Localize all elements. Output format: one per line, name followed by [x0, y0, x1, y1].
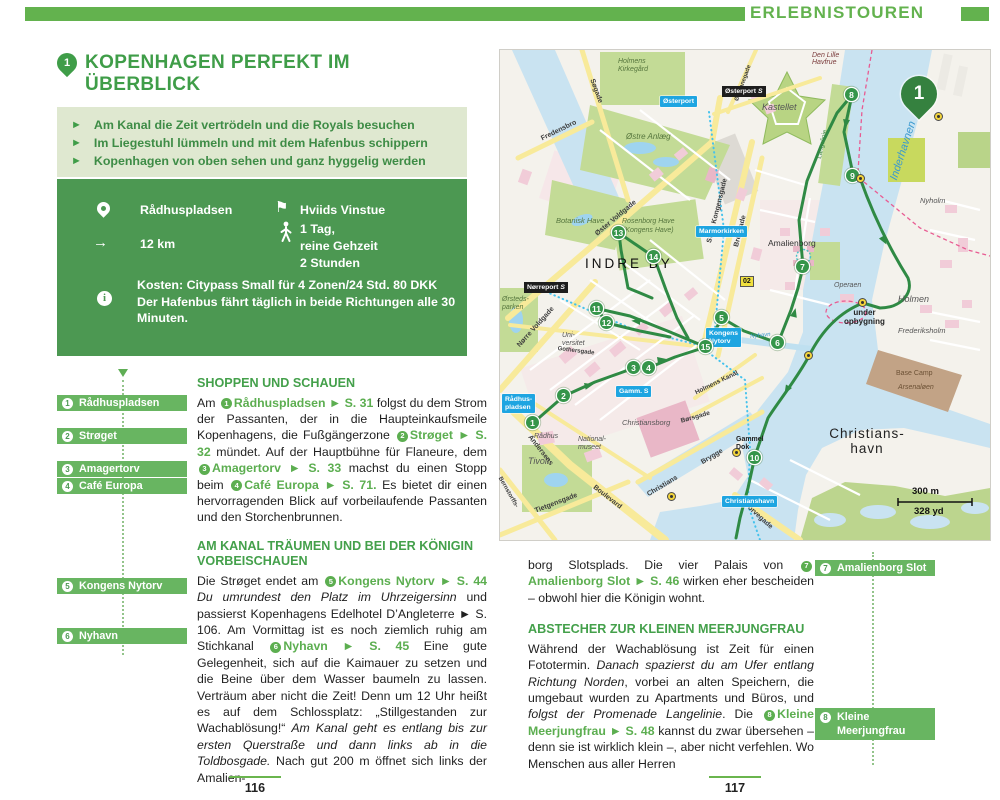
label-holmen: Holmen [898, 294, 929, 304]
info-icon: i [97, 291, 112, 306]
label-under-opbygning: under opbygning [844, 308, 885, 326]
page-ref: ► S. 33 [281, 461, 341, 475]
harbour-bus-stop-icon [858, 298, 867, 307]
route-direction-arrow-icon [118, 369, 128, 377]
margin-label-kongens-nytorv: 5 Kongens Nytorv [57, 578, 187, 594]
page-number-right: 117 [709, 781, 761, 795]
label-arsenaloen: Arsenaløen [898, 384, 934, 391]
highlight-text: Im Liegestuhl lümmeln und mit dem Hafenb… [94, 134, 428, 152]
label-universitet: Uni- versitet [562, 332, 585, 348]
stop-name: Café Europa [79, 480, 143, 492]
label-oestre-anlaeg: Østre Anlæg [626, 132, 671, 141]
label-oerstedsparken: Ørsteds- parken [502, 296, 529, 312]
station-oesterport-metro: Østerport [660, 96, 697, 107]
city-map: INDRE BY Christians- havn Kastellet Amal… [500, 50, 990, 540]
map-stop-6: 6 [771, 336, 784, 349]
text: borg Slotsplads. Die vier Palais von [528, 558, 799, 572]
location-pin-icon [94, 199, 112, 217]
harbour-bus-stop-icon [934, 112, 943, 121]
tour-pin-icon: 1 [894, 69, 945, 120]
left-text-column: SHOPPEN UND SCHAUEN Am 1Rådhuspladsen ► … [197, 376, 487, 786]
page-ref: ► S. 45 [328, 639, 409, 653]
page-ref: ► S. 71. [319, 478, 377, 492]
right-text-column: borg Slotsplads. Die vier Palais von 7Am… [528, 557, 814, 772]
harbour-bus-stop-icon [856, 174, 865, 183]
label-kongens-have: Rosenborg Have (Kongens Have) [622, 218, 675, 235]
margin-label-amalienborg-slot: 7 Amalienborg Slot [815, 560, 935, 576]
label-amalienborg: Amalienborg [768, 238, 816, 248]
link-cafe-europa: Café Europa [244, 478, 319, 492]
text: Die Strøget endet am [197, 574, 323, 588]
section-heading: AM KANAL TRÄUMEN UND BEI DER KÖNIGIN VOR… [197, 539, 487, 570]
bullet-arrow-icon: ► [71, 134, 82, 152]
label-raadhus: Rådhus [534, 433, 558, 440]
stop-number: 3 [62, 464, 73, 475]
label-frederiksholm: Frederiksholm [898, 326, 946, 335]
map-stop-5: 5 [715, 311, 728, 324]
stop-number: 1 [62, 398, 73, 409]
label-nyholm: Nyholm [920, 196, 945, 205]
highlight-text: Kopenhagen von oben sehen und ganz hygge… [94, 152, 426, 170]
footer-rule [229, 776, 281, 778]
footer-rule [709, 776, 761, 778]
route-dotted-line [122, 380, 124, 655]
margin-label-nyhavn: 6 Nyhavn [57, 628, 187, 644]
station-gammel-strand: Gamm. S [616, 386, 651, 397]
start-point: Rådhuspladsen [140, 203, 232, 217]
inline-stop-badge: 8 [764, 710, 775, 721]
highlight-item: ► Kopenhagen von oben sehen und ganz hyg… [71, 152, 467, 170]
district-label-christianshavn: Christians- havn [822, 426, 912, 456]
label-holmens-kirkegaard: Holmens Kirkegård [618, 58, 648, 74]
paragraph: borg Slotsplads. Die vier Palais von 7Am… [528, 557, 814, 606]
harbour-bus-stop-icon [667, 492, 676, 501]
s-train-icon: S [758, 88, 763, 95]
inline-stop-badge: 7 [801, 561, 812, 572]
paragraph: Am 1Rådhuspladsen ► S. 31 folgst du dem … [197, 395, 487, 526]
map-stop-14: 14 [647, 250, 660, 263]
map-stop-4: 4 [642, 361, 655, 374]
margin-label-stroeget: 2 Strøget [57, 428, 187, 444]
stop-name: Kongens Nytorv [79, 580, 162, 592]
margin-label-raadhuspladsen: 1 Rådhuspladsen [57, 395, 187, 411]
map-stop-10: 10 [748, 451, 761, 464]
inline-stop-badge: 2 [397, 431, 408, 442]
inline-stop-badge: 5 [325, 576, 336, 587]
bullet-arrow-icon: ► [71, 152, 82, 170]
map-stop-3: 3 [627, 361, 640, 374]
finish-flag-icon: ⚑ [275, 198, 288, 216]
harbour-bus-stop-icon [732, 448, 741, 457]
station-noerreport: NørreportS [524, 282, 568, 293]
map-stop-11: 11 [590, 302, 603, 315]
link-nyhavn: Nyhavn [283, 639, 327, 653]
header-rule-end [961, 7, 989, 21]
stop-name: Amagertorv [79, 463, 140, 475]
stop-name: Amalienborg Slot [837, 562, 926, 574]
page-ref: ► S. 48 [606, 724, 655, 738]
stop-number: 2 [62, 431, 73, 442]
highlights-box: ► Am Kanal die Zeit vertrödeln und die R… [57, 107, 467, 177]
stop-name: Nyhavn [79, 630, 118, 642]
walking-directions: folgst der Promenade Langelinie [528, 707, 722, 721]
stop-number: 8 [820, 712, 831, 723]
inline-stop-badge: 6 [270, 642, 281, 653]
stop-name: Strøget [79, 430, 117, 442]
highlight-item: ► Im Liegestuhl lümmeln und mit dem Hafe… [71, 134, 467, 152]
station-marmorkirken: Marmorkirken [696, 226, 747, 237]
link-kongens-nytorv: Kongens Nytorv [338, 574, 434, 588]
map-stop-7: 7 [796, 260, 809, 273]
section-heading: ABSTECHER ZUR KLEINEN MEERJUNGFRAU [528, 622, 814, 638]
distance-value: 12 km [140, 237, 175, 251]
highlight-text: Am Kanal die Zeit vertrödeln und die Roy… [94, 116, 415, 134]
header-rule [25, 7, 745, 21]
inline-stop-badge: 4 [231, 480, 242, 491]
page-ref: ► S. 44 [435, 574, 487, 588]
text: . Die [722, 707, 762, 721]
margin-label-cafe-europa: 4 Café Europa [57, 478, 187, 494]
cost-notes: Kosten: Citypass Small für 4 Zonen/24 St… [137, 277, 459, 327]
paragraph: Während der Wachablösung ist Zeit für ei… [528, 641, 814, 772]
stop-number: 4 [62, 481, 73, 492]
link-raadhuspladsen: Rådhuspladsen [234, 396, 326, 410]
map-stop-2: 2 [557, 389, 570, 402]
walking-directions: Du umrundest den Platz im Uhrzeigersinn [197, 590, 457, 604]
label-operaen: Operaen [834, 282, 861, 289]
map-stop-12: 12 [600, 316, 613, 329]
tour-info-box: Rådhuspladsen ⚑ Hviids Vinstue → 12 km 1… [57, 179, 467, 356]
text: mündet. Auf der Hauptbühne für Flaneure,… [211, 445, 487, 459]
chapter-title: ERLEBNISTOUREN [750, 3, 924, 23]
book-spread: { "header": { "title": "ERLEBNISTOUREN" … [0, 0, 1000, 800]
label-base-camp: Base Camp [896, 370, 933, 377]
label-kastellet: Kastellet [762, 102, 797, 112]
label-den-lille-havfrue: Den Lille Havfrue [812, 52, 839, 66]
stop-number: 7 [820, 563, 831, 574]
walking-person-icon [279, 221, 293, 248]
stop-name: Rådhuspladsen [79, 397, 159, 409]
bus-line-badge: 02 [740, 276, 754, 287]
link-stroeget: Strøget [410, 428, 453, 442]
station-oesterport-stog: ØsterportS [722, 86, 766, 97]
margin-label-amagertorv: 3 Amagertorv [57, 461, 187, 477]
label-botanisk-have: Botanisk Have [556, 216, 604, 225]
map-stop-13: 13 [612, 226, 625, 239]
section-heading: SHOPPEN UND SCHAUEN [197, 376, 487, 392]
finish-point: Hviids Vinstue [300, 203, 385, 217]
scale-imperial: 328 yd [914, 506, 944, 517]
tour-title-block: 1 KOPENHAGEN PERFEKT IM ÜBERBLICK [57, 52, 395, 96]
paragraph: Die Strøget endet am 5Kongens Nytorv ► S… [197, 573, 487, 786]
harbour-bus-stop-icon [804, 351, 813, 360]
stop-name: Kleine Meerjungfrau [837, 710, 929, 738]
inline-stop-badge: 1 [221, 398, 232, 409]
station-christianshavn: Christianshavn [722, 496, 777, 507]
inline-stop-badge: 3 [199, 464, 210, 475]
label-christiansborg: Christiansborg [622, 418, 670, 427]
bullet-arrow-icon: ► [71, 116, 82, 134]
tour-number-pin-icon: 1 [53, 49, 81, 77]
duration-value: 1 Tag, reine Gehzeit 2 Stunden [300, 221, 378, 272]
map-stop-8: 8 [845, 88, 858, 101]
stop-number: 5 [62, 581, 73, 592]
stop-number: 6 [62, 631, 73, 642]
page-title: KOPENHAGEN PERFEKT IM ÜBERBLICK [85, 52, 395, 96]
link-amalienborg-slot: Amalienborg Slot [528, 574, 630, 588]
distance-arrow-icon: → [93, 234, 108, 251]
scale-metric: 300 m [912, 486, 939, 497]
page-ref: ► S. 31 [325, 396, 373, 410]
link-amagertorv: Amagertorv [212, 461, 281, 475]
highlight-item: ► Am Kanal die Zeit vertrödeln und die R… [71, 116, 467, 134]
s-train-icon: S [560, 284, 565, 291]
label-nationalmuseet: National- museet [578, 436, 606, 452]
page-ref: ► S. 46 [630, 574, 679, 588]
page-number-left: 116 [229, 781, 281, 795]
map-stop-1: 1 [526, 416, 539, 429]
station-raadhuspladsen: Rådhus- pladsen [502, 394, 535, 413]
map-stop-15: 15 [699, 340, 712, 353]
text: Am [197, 396, 219, 410]
margin-label-kleine-meerjungfrau: 8 Kleine Meerjungfrau [815, 708, 935, 740]
